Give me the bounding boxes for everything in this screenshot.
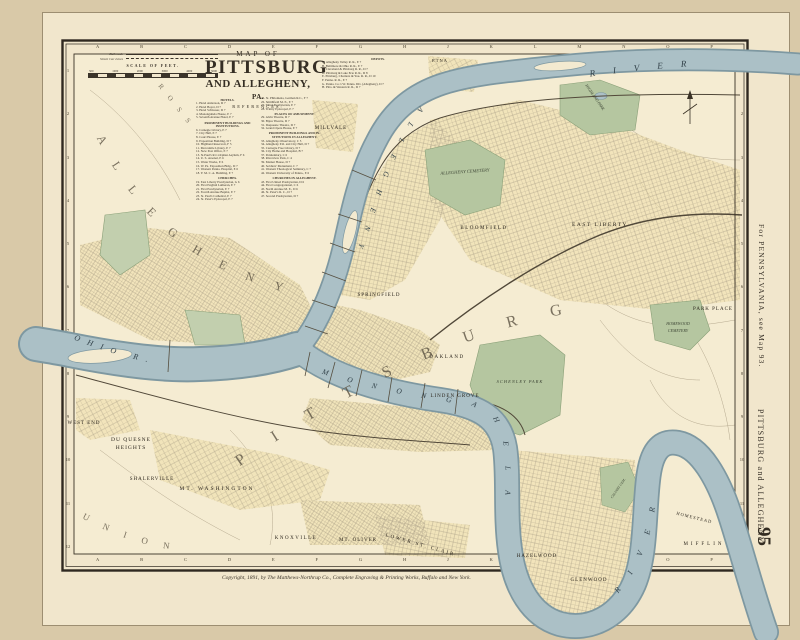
reference-line: 5. Seventh Avenue Hotel, E 7 [196, 116, 259, 120]
reference-line: 42. Western University of Penna., E 6 [261, 172, 328, 176]
label-knoxville: KNOXVILLE [275, 536, 317, 541]
label-mt-oliver: MT. OLIVER [339, 538, 377, 543]
scale-tick: 3000 [162, 69, 168, 73]
label-mifflin: MIFFLIN [683, 542, 724, 547]
reference-line: 18. Y. M. C. A. Building, E 7 [196, 172, 259, 176]
reference-line: 32. Grand Opera House, E 7 [261, 127, 328, 131]
title-pittsburg: PITTSBURG [205, 58, 311, 78]
label-springfield: SPRINGFIELD [358, 293, 401, 298]
label-oakland: OAKLAND [429, 355, 464, 360]
label-glenwood: GLENWOOD [571, 578, 608, 583]
reference-line: 47. Second Presbyterian, D 7 [261, 195, 328, 199]
label-etna: ETNA [432, 58, 448, 63]
west-park-area [185, 310, 245, 345]
label-schenley-park: SCHENLEY PARK [497, 379, 544, 384]
map-canvas: PITTSBURG ALLEGHENY ROSS UNION RIVER ALL… [0, 0, 800, 640]
label-homewood-cemetery-1: HOMEWOOD [665, 321, 690, 326]
label-duquesne-heights-1: DU QUESNE [111, 437, 151, 443]
depots-list: DEPOTS.A. Allegheny Valley R. R., E 7B. … [322, 56, 434, 90]
label-homewood-cemetery-2: CEMETERY [668, 328, 689, 333]
label-shalerville: SHALERVILLE [130, 477, 174, 482]
references-column-1: HOTELS.1. Hotel Anderson, D 72. Hotel Bo… [196, 97, 259, 202]
label-west-end: WEST END [67, 421, 100, 426]
label-linden-grove: LINDEN GROVE [430, 394, 479, 399]
label-park-place: PARK PLACE [693, 307, 733, 312]
scale-tick: 2000 [137, 69, 143, 73]
references-column-2: 25. St. Philomena, German R.C., F 726. S… [261, 97, 328, 198]
label-mt-washington: MT. WASHINGTON [179, 486, 254, 492]
map-legend: Railroads Street Car Lines SCALE OF FEET… [88, 52, 218, 78]
title-and-allegheny-text: AND ALLEGHENY, [205, 78, 310, 90]
scale-bar [88, 73, 218, 78]
streetcar-legend-label: Street Car Lines [88, 57, 126, 61]
label-hazelwood: HAZELWOOD [517, 554, 558, 559]
depot-line: H. Pitts. & Western R. R., D 7 [322, 86, 434, 90]
scale-tick: 4000 [186, 69, 192, 73]
label-duquesne-heights-2: HEIGHTS [116, 445, 147, 451]
label-bloomfield: BLOOMFIELD [460, 226, 507, 231]
map-plate: ABCDEFGHJKLMNOP ABCDEFGHJKLMNOP 12345678… [0, 0, 800, 640]
scale-tick: 1000 [112, 69, 118, 73]
reference-line: 28. Trinity Episcopal, E 7 [261, 108, 328, 112]
railroads-legend-label: Railroads [88, 52, 126, 56]
scale-tick: 500 [89, 69, 94, 73]
scale-title: SCALE OF FEET. [88, 63, 218, 68]
reference-line: 24. St. Peter's Episcopal, E 7 [196, 198, 259, 202]
label-east-liberty: EAST LIBERTY [572, 222, 628, 228]
